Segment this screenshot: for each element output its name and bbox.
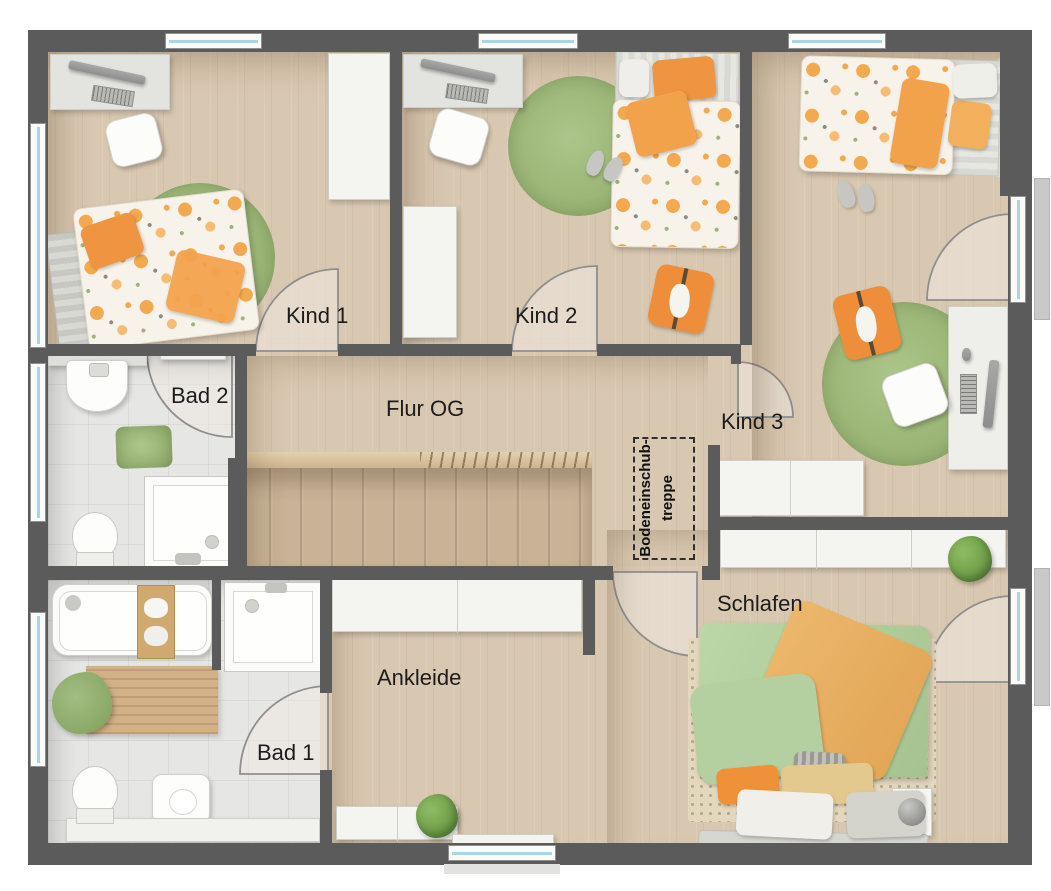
- attic-stairs-label-line1: Bodeneinschub-: [635, 438, 657, 558]
- shower: [224, 582, 322, 672]
- shower-head: [265, 583, 287, 593]
- bed: [798, 53, 1007, 176]
- balcony-door-schlafen: [1010, 588, 1026, 685]
- room-label-kind3: Kind 3: [721, 410, 783, 434]
- bed: [610, 49, 741, 249]
- desk: [948, 306, 1008, 470]
- window-left-bad2: [30, 363, 46, 522]
- wall-corner-block: [1000, 30, 1032, 196]
- wall-kind2-south-b: [597, 344, 741, 356]
- door-glass: [1017, 200, 1020, 299]
- window-top-kind1: [165, 33, 262, 49]
- room-label-kind2: Kind 2: [515, 304, 577, 328]
- staircase-steps: [238, 468, 592, 566]
- wall-kind3-schlafen: [708, 517, 1008, 530]
- sideboard-divider: [790, 461, 791, 517]
- wall-tub-partition: [212, 580, 221, 670]
- window-glass: [37, 127, 40, 344]
- potted-plant: [416, 794, 458, 838]
- wardrobe-divider: [816, 529, 817, 569]
- white-pillow: [736, 789, 834, 840]
- attic-stairs-label-line2: treppe: [657, 438, 679, 558]
- window-glass: [482, 40, 574, 43]
- room-label-flur: Flur OG: [386, 397, 464, 421]
- window-glass: [169, 40, 258, 43]
- wardrobe-divider: [911, 529, 912, 569]
- room-label-kind1: Kind 1: [286, 304, 348, 328]
- potted-plant: [948, 536, 992, 582]
- window-left-kind1: [30, 123, 46, 348]
- door-glass: [1017, 592, 1020, 681]
- wardrobe: [332, 578, 582, 632]
- wall-kind2-south-a: [402, 344, 512, 356]
- window-glass: [792, 40, 882, 43]
- room-label-bad2: Bad 2: [171, 384, 229, 408]
- window-bottom-ankleide: [448, 845, 556, 861]
- bidet: [152, 774, 210, 824]
- washbasin: [66, 360, 128, 412]
- wall-kind1-kind2: [390, 52, 402, 345]
- wall-bad1-east-lower: [320, 770, 332, 843]
- toilet-tank: [76, 808, 114, 824]
- bidet-bowl: [169, 789, 197, 815]
- tub-caddy: [137, 585, 175, 659]
- keyboard: [960, 374, 977, 414]
- attic-stairs-label: Bodeneinschub- treppe: [635, 438, 693, 558]
- wall-kind1-south-b: [338, 344, 402, 356]
- shower-tray: [153, 485, 229, 561]
- sideboard-divider: [397, 807, 398, 841]
- doll: [668, 283, 690, 318]
- window-glass: [37, 367, 40, 518]
- wall-kind2-kind3: [740, 52, 752, 345]
- exterior-shutter: [1034, 568, 1050, 706]
- double-bed: [696, 622, 934, 856]
- staircase-spindles: [420, 452, 592, 468]
- basin-tap: [89, 363, 109, 377]
- orange-pillow: [947, 99, 993, 150]
- wall-flur-kind3: [708, 445, 720, 580]
- doll: [854, 305, 879, 343]
- bed: [42, 184, 262, 354]
- tub-rim: [59, 591, 207, 651]
- window-glass: [37, 616, 40, 763]
- window-glass: [452, 852, 552, 855]
- exterior-sill: [444, 864, 560, 874]
- mouse: [962, 348, 971, 361]
- room-label-schlafen: Schlafen: [717, 592, 803, 616]
- attic-stairs-outline: Bodeneinschub- treppe: [633, 437, 695, 560]
- window-top-kind3: [788, 33, 886, 49]
- white-pillow: [619, 59, 650, 98]
- shower: [144, 476, 238, 570]
- shower-drain: [245, 599, 259, 613]
- room-label-bad1: Bad 1: [257, 741, 315, 765]
- white-pillow: [952, 63, 997, 99]
- bathtub: [52, 584, 212, 656]
- room-label-ankleide: Ankleide: [377, 666, 461, 690]
- exterior-shutter: [1034, 178, 1050, 320]
- tub-faucet: [65, 595, 81, 611]
- floor-plan: Kind 1 Kind 2 Kind 3 Bad 2 Flur OG Bad 1…: [0, 0, 1051, 891]
- green-towel: [52, 672, 112, 734]
- towel-roll: [144, 598, 168, 618]
- window-top-kind2: [478, 33, 578, 49]
- wall-bad2-north: [48, 344, 147, 356]
- sideboard: [716, 460, 864, 516]
- tall-cabinet: [403, 206, 457, 338]
- wardrobe-divider: [457, 579, 458, 633]
- wall-ankleide-east: [583, 580, 595, 655]
- wall-bad1-east-upper: [320, 580, 332, 693]
- shower-faucet: [175, 553, 201, 565]
- wall-stub-kind3-door: [731, 344, 741, 364]
- wall-stair-stub: [228, 458, 240, 568]
- bath-mat: [115, 425, 172, 469]
- shower-drain: [205, 535, 219, 549]
- balcony-door-kind3: [1010, 196, 1026, 303]
- wardrobe: [328, 53, 390, 200]
- window-left-bad1: [30, 612, 46, 767]
- wall-flur-south: [48, 566, 613, 580]
- towel-roll: [144, 626, 168, 646]
- decor-sphere: [898, 798, 926, 826]
